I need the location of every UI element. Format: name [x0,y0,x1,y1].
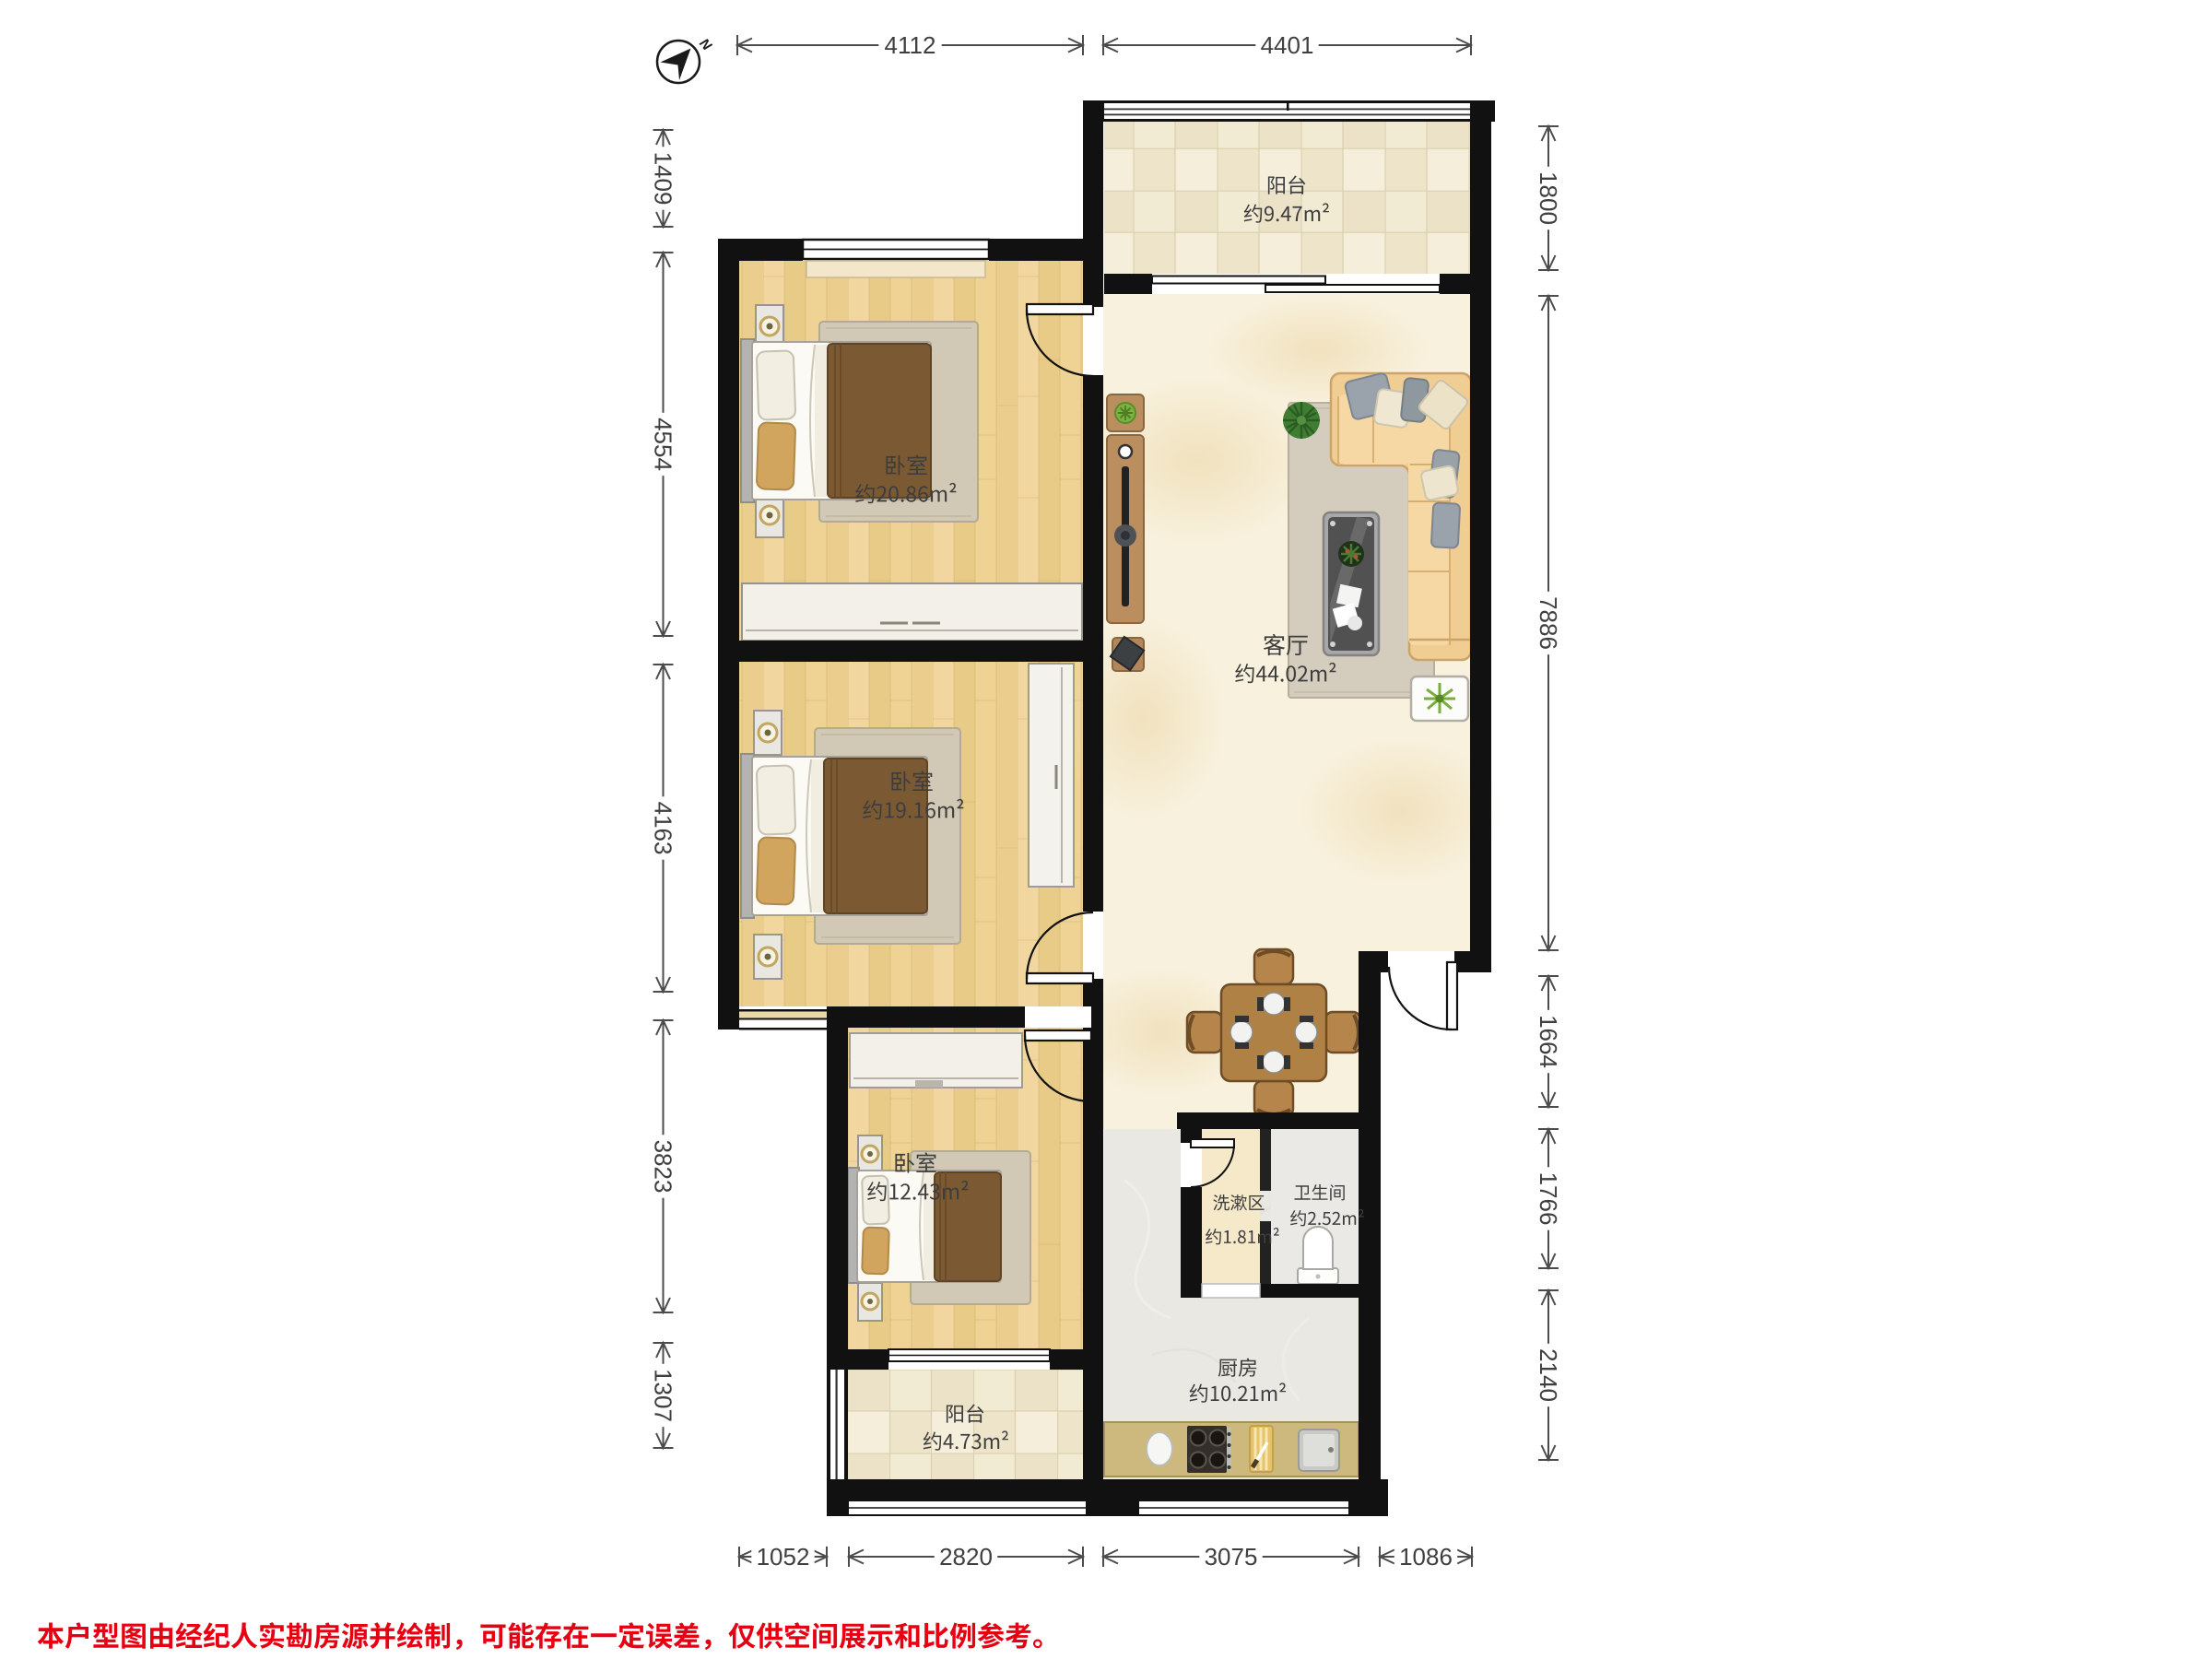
svg-text:4163: 4163 [650,802,677,855]
svg-text:1800: 1800 [1535,171,1562,225]
svg-text:2820: 2820 [939,1543,993,1571]
svg-text:3075: 3075 [1205,1543,1258,1571]
svg-text:1307: 1307 [650,1369,677,1422]
svg-text:1086: 1086 [1399,1543,1453,1571]
svg-text:4401: 4401 [1261,31,1314,59]
svg-text:7886: 7886 [1535,596,1562,650]
svg-text:3823: 3823 [650,1140,677,1194]
svg-text:4112: 4112 [885,31,936,59]
svg-text:2140: 2140 [1535,1348,1562,1402]
svg-text:1664: 1664 [1535,1015,1562,1068]
svg-text:4554: 4554 [650,418,677,471]
svg-text:1052: 1052 [757,1543,810,1571]
svg-text:1766: 1766 [1535,1172,1562,1226]
svg-text:1409: 1409 [650,152,677,206]
